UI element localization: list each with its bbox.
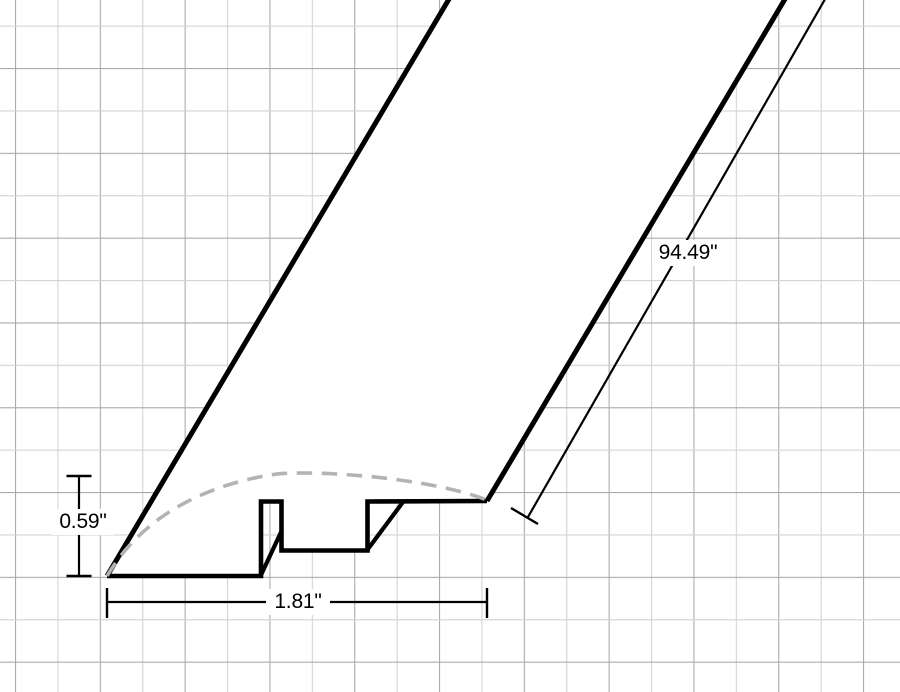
length-dimension-label: 94.49" xyxy=(652,240,724,266)
height-dimension-label: 0.59" xyxy=(52,509,114,535)
diagram-canvas: 0.59" 1.81" 94.49" xyxy=(0,0,900,692)
width-dimension-label: 1.81" xyxy=(266,589,330,615)
molding-diagram xyxy=(0,0,900,692)
